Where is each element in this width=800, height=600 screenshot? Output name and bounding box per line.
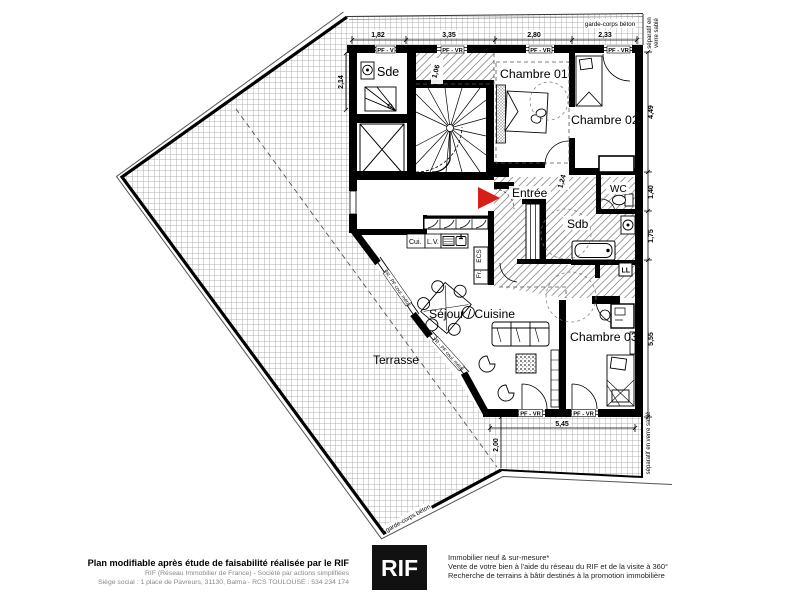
svg-text:PF - VR: PF - VR [442, 48, 463, 54]
svg-text:WC: WC [610, 184, 627, 195]
svg-text:RIF: RIF [381, 555, 418, 581]
svg-text:Recherche de terrains à bâtir: Recherche de terrains à bâtir destinés à… [448, 571, 665, 580]
svg-text:PF - V: PF - V [377, 48, 394, 54]
svg-text:1,82: 1,82 [371, 32, 385, 39]
svg-text:5,55: 5,55 [648, 332, 655, 346]
svg-text:Plan modifiable après étude de: Plan modifiable après étude de faisabili… [88, 558, 350, 568]
svg-text:2,14: 2,14 [338, 75, 345, 89]
svg-text:5,45: 5,45 [555, 421, 569, 428]
svg-text:Fr.: Fr. [476, 271, 483, 279]
svg-text:Cui.: Cui. [409, 239, 422, 246]
svg-text:3,35: 3,35 [442, 32, 456, 39]
svg-text:PF - VR: PF - VR [520, 412, 541, 418]
svg-text:Siège social : 1 place de Pavr: Siège social : 1 place de Pavreurs, 3113… [98, 579, 349, 586]
svg-text:ECS: ECS [476, 249, 483, 263]
svg-text:4,49: 4,49 [648, 105, 655, 119]
svg-text:Sdb: Sdb [567, 217, 589, 231]
svg-text:Vente de votre bien à l'aide d: Vente de votre bien à l'aide du réseau d… [448, 562, 668, 571]
svg-text:garde-corps béton: garde-corps béton [585, 21, 636, 28]
svg-text:RIF (Réseau Immobilier de Fran: RIF (Réseau Immobilier de France) - Soci… [145, 570, 350, 577]
svg-text:PF - VR: PF - VR [530, 48, 551, 54]
svg-text:L.V.: L.V. [427, 239, 439, 246]
svg-text:LL: LL [622, 268, 631, 275]
svg-text:Sde: Sde [377, 65, 399, 79]
svg-text:verre sablé: verre sablé [654, 18, 660, 48]
svg-text:séparatif en verre sablé: séparatif en verre sablé [646, 411, 652, 474]
svg-text:PF - VR: PF - VR [573, 412, 594, 418]
svg-text:Immobilier neuf & sur-mesure*: Immobilier neuf & sur-mesure* [448, 553, 549, 562]
svg-text:1,75: 1,75 [648, 229, 655, 243]
svg-text:2,33: 2,33 [598, 32, 612, 39]
svg-text:PF - VR: PF - VR [608, 48, 629, 54]
svg-text:Chambre 01: Chambre 01 [500, 67, 568, 81]
svg-text:Chambre 02: Chambre 02 [571, 113, 639, 127]
svg-text:séparatif en: séparatif en [647, 17, 653, 48]
svg-text:Terrasse: Terrasse [373, 353, 419, 367]
svg-text:Séjour / Cuisine: Séjour / Cuisine [429, 307, 515, 321]
svg-text:2,00: 2,00 [493, 438, 500, 452]
svg-text:1,40: 1,40 [648, 185, 655, 199]
svg-text:Chambre 03: Chambre 03 [570, 330, 638, 344]
svg-text:Entrée: Entrée [512, 186, 548, 200]
svg-text:2,80: 2,80 [527, 32, 541, 39]
